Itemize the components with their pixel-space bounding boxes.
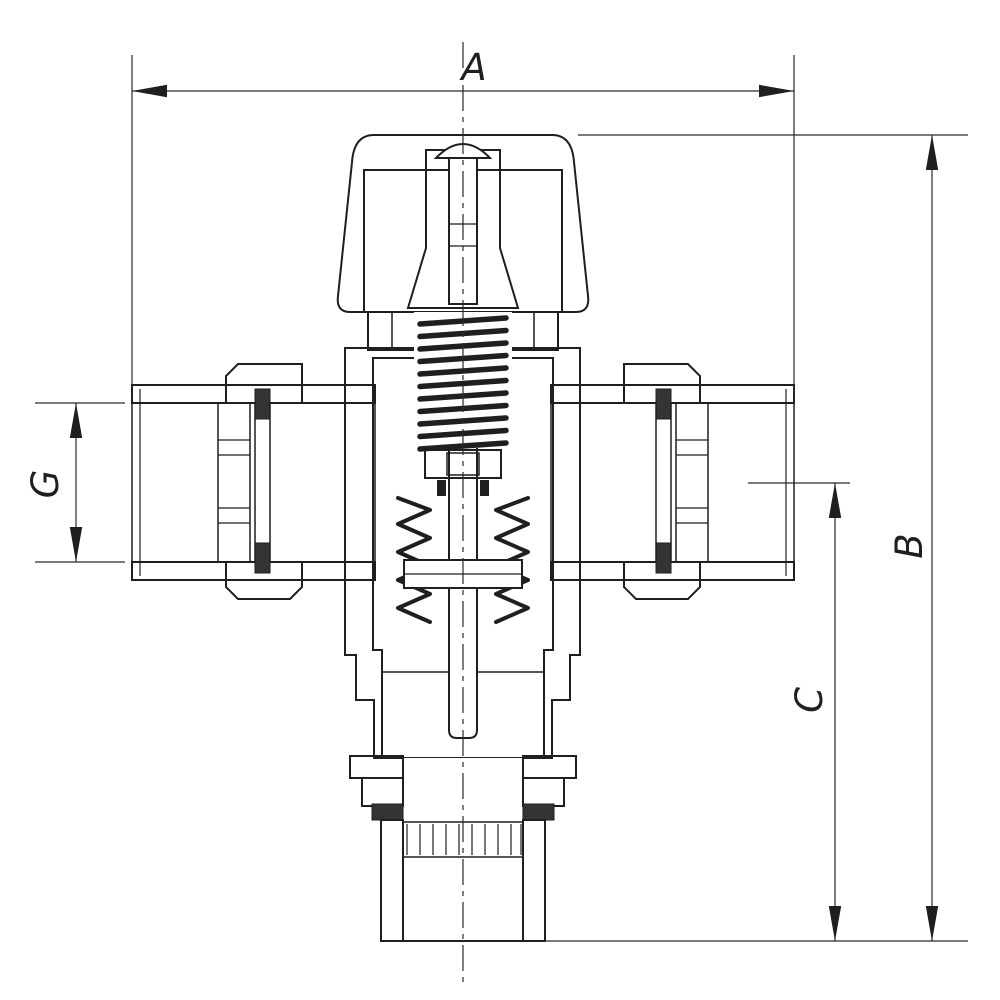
left-pipe-bottom-wall bbox=[132, 562, 375, 580]
arrowhead-bottom bbox=[926, 906, 938, 941]
arrowhead-bottom bbox=[70, 527, 82, 562]
technical-drawing-canvas: A B C G bbox=[0, 0, 1000, 1000]
outlet-gasket-left bbox=[372, 804, 403, 820]
outlet-nut-flange-left bbox=[350, 756, 403, 778]
arrowhead-top bbox=[70, 403, 82, 438]
left-gasket bbox=[255, 389, 270, 419]
outlet-gasket-right bbox=[523, 804, 554, 820]
outlet-nut-flange-right bbox=[523, 756, 576, 778]
right-port bbox=[551, 364, 794, 599]
dim-label-c: C bbox=[788, 687, 831, 713]
stem-seal bbox=[437, 480, 446, 496]
dim-label-g: G bbox=[24, 470, 67, 499]
knurl-right bbox=[534, 312, 558, 350]
right-pipe-bottom-wall bbox=[551, 562, 794, 580]
dim-label-b: B bbox=[888, 533, 931, 558]
left-pipe-top-wall bbox=[132, 385, 375, 403]
arrowhead-bottom bbox=[829, 906, 841, 941]
arrowhead-top bbox=[829, 483, 841, 518]
dim-label-a: A bbox=[459, 46, 486, 89]
left-gasket bbox=[255, 543, 270, 573]
right-gasket bbox=[656, 389, 671, 419]
arrowhead-right bbox=[759, 85, 794, 97]
outlet-nut-right bbox=[523, 778, 564, 806]
outlet-nut-left bbox=[362, 778, 403, 806]
right-pipe-top-wall bbox=[551, 385, 794, 403]
left-pipe-bore bbox=[132, 403, 375, 562]
left-thread-lines bbox=[218, 440, 250, 523]
arrowhead-top bbox=[926, 135, 938, 170]
dimension-b: B bbox=[545, 135, 968, 941]
outlet-pipe-wall-left bbox=[381, 820, 403, 941]
left-port bbox=[132, 364, 375, 599]
stem-seal bbox=[480, 480, 489, 496]
outlet-pipe-wall-right bbox=[523, 820, 545, 941]
right-gasket bbox=[656, 543, 671, 573]
valve-cross-section-drawing: A B C G bbox=[0, 0, 1000, 1000]
knurl-left bbox=[368, 312, 392, 350]
right-thread-lines bbox=[676, 440, 708, 523]
dimension-c: C bbox=[748, 483, 850, 941]
arrowhead-left bbox=[132, 85, 167, 97]
dimension-g: G bbox=[24, 403, 125, 562]
